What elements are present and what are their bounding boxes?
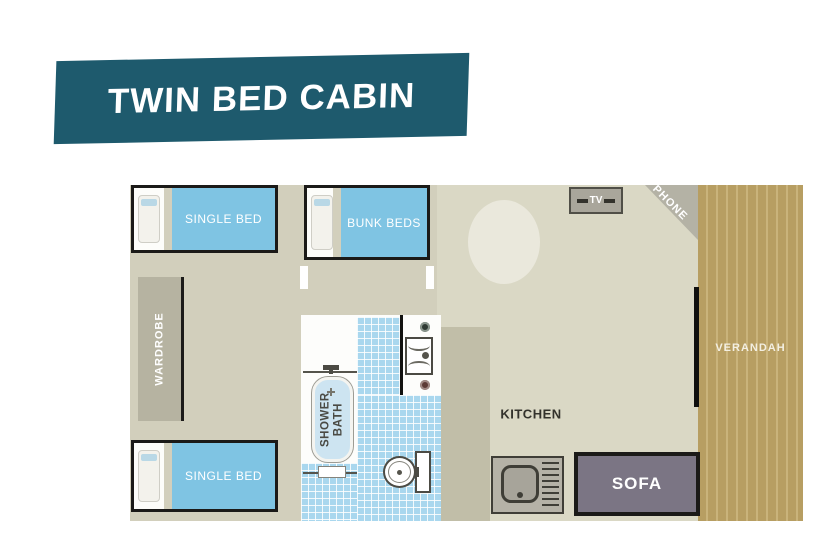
toilet-tank [415,451,431,493]
page: TWIN BED CABIN VERANDAH PHONE TV SINGLE … [0,0,820,560]
vent-circle-icon [420,322,430,332]
wardrobe: WARDROBE [138,277,184,421]
mattress: BUNK BEDS [341,188,427,257]
bathroom-tiles [357,317,400,395]
bathroom-sink [405,337,433,375]
sofa-label: SOFA [612,474,662,494]
tv-label: TV [590,195,603,206]
wardrobe-label: WARDROBE [154,312,166,385]
bed-head [134,188,164,250]
tv-speaker-right-icon [604,199,615,203]
door-opening-left [300,266,308,289]
pillow-icon [311,195,333,250]
mattress: SINGLE BED [172,443,275,509]
drain-circle-icon [420,380,430,390]
bed-head [307,188,333,257]
floor-plan: VERANDAH PHONE TV SINGLE BED [130,185,803,521]
mattress: SINGLE BED [172,188,275,250]
bath-step [318,466,346,478]
tv-speaker-left-icon [577,199,588,203]
kitchen-label: KITCHEN [500,407,561,422]
verandah-label: VERANDAH [715,342,785,354]
sofa: SOFA [574,452,700,516]
kitchen-bench [438,327,490,521]
door-opening-right [426,266,434,289]
drawer-stack-icon [542,462,559,507]
single-bed-bottom: SINGLE BED [131,440,278,512]
verandah-door [694,287,699,407]
bed-head [134,443,164,509]
tv: TV [569,187,623,214]
basin-edge [408,340,430,351]
single-bed-top-label: SINGLE BED [185,212,262,226]
bed-divider [164,443,172,509]
title-banner: TWIN BED CABIN [54,53,470,144]
kitchen-sink [501,465,539,503]
shower-head-icon [323,365,339,370]
bed-divider [164,188,172,250]
tap-icon [422,352,429,359]
bunk-beds: BUNK BEDS [304,185,430,260]
kitchen-sink-unit [491,456,564,514]
pillow-icon [138,195,160,243]
round-table [468,200,540,284]
verandah: VERANDAH [698,185,803,521]
page-title: TWIN BED CABIN [107,75,416,121]
bathroom: SHOWER BATH [301,315,441,521]
single-bed-bottom-label: SINGLE BED [185,469,262,483]
bathroom-wall-segment [400,315,403,395]
bunk-beds-label: BUNK BEDS [347,216,421,230]
shower-bath-label: SHOWER BATH [320,392,345,447]
toilet-bowl [383,456,416,488]
faucet-cross-icon [327,388,335,396]
basin-edge [408,361,430,372]
bed-divider [333,188,341,257]
pillow-icon [138,450,160,502]
single-bed-top: SINGLE BED [131,185,278,253]
